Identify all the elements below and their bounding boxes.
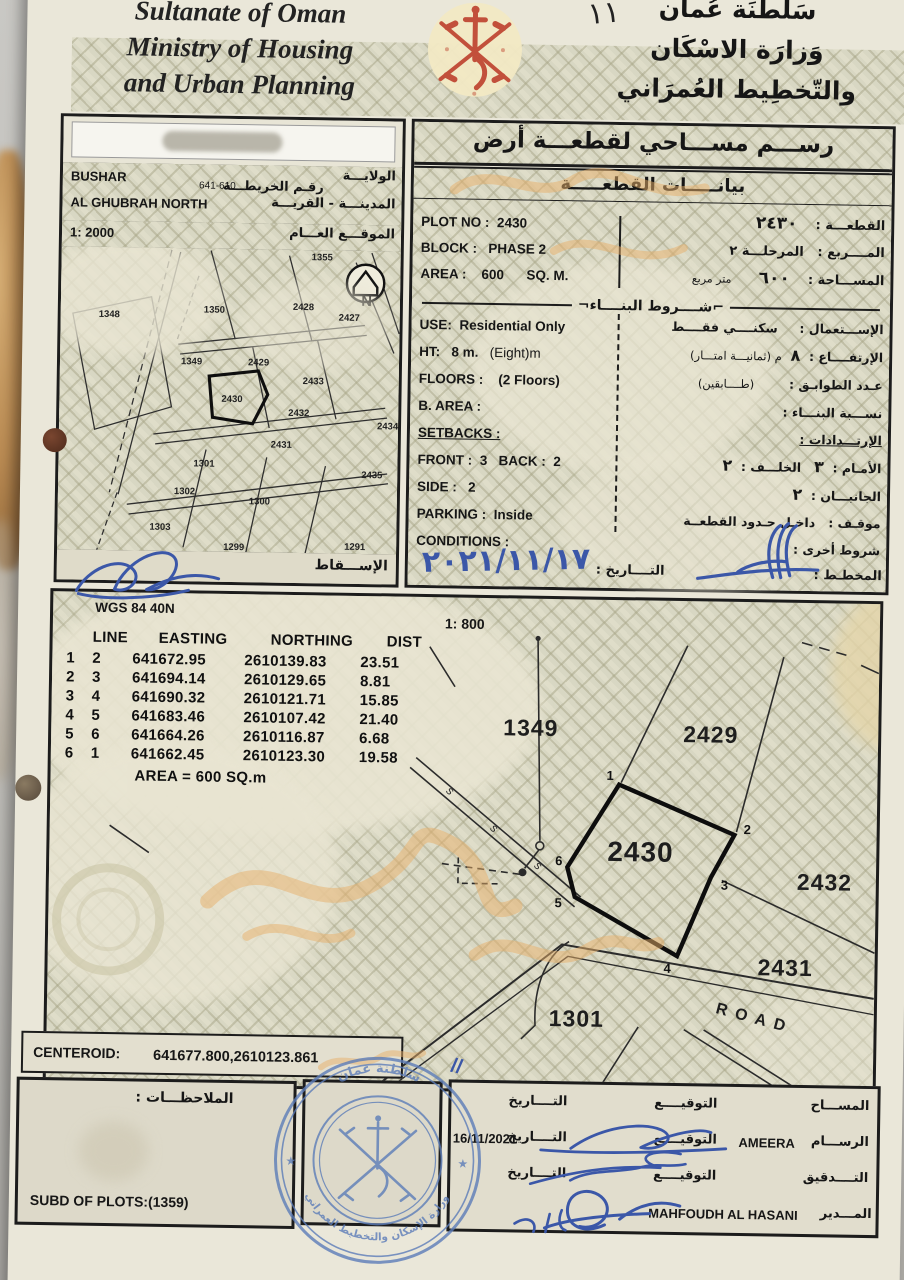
side-value-ar: ٢ bbox=[792, 485, 802, 504]
svg-text:★: ★ bbox=[457, 1157, 468, 1171]
header-ar-line2: وَزارَة الاسْكَان bbox=[597, 28, 878, 72]
front-label: FRONT : bbox=[417, 452, 472, 468]
plan-date-row: ٢٠٢١/١١/١٧ التــــاريخ : المخطـط : bbox=[408, 554, 886, 593]
map-plot-label-1291: 1291 bbox=[344, 542, 365, 553]
parking-label-ar: موقـف : bbox=[828, 515, 881, 531]
area-label-ar: المســـاحة : bbox=[808, 273, 885, 289]
ht-label-ar: الإرتفــــاع : bbox=[809, 349, 883, 365]
orange-watermark-script bbox=[208, 832, 517, 910]
header-ar-line1: سَلْطنَة عُمان bbox=[597, 0, 878, 32]
notes-box: الملاحظـــات : SUBD OF PLOTS:(1359) bbox=[14, 1077, 296, 1229]
drawing-scale-label: 1: 800 bbox=[445, 615, 485, 632]
map-plot-label-2433: 2433 bbox=[303, 376, 324, 387]
watermark-emblem-faint bbox=[78, 1121, 149, 1182]
subd-of-plots: SUBD OF PLOTS:(1359) bbox=[30, 1192, 189, 1210]
wilayat-label-ar: الولايـــة bbox=[343, 169, 396, 185]
area-value: 600 bbox=[481, 267, 504, 282]
col-dist: DIST bbox=[386, 632, 448, 652]
plot-2430-boundary bbox=[566, 784, 735, 957]
col-easting: EASTING bbox=[159, 629, 271, 650]
map-plot-label-1349: 1349 bbox=[181, 356, 202, 367]
approval-signatures bbox=[509, 1105, 841, 1240]
map-plot-label-1303: 1303 bbox=[149, 522, 170, 533]
left-panel: BUSHAR الولايـــة رقـم الخريطـــة 641-61… bbox=[54, 113, 406, 587]
map-plot-label-2434: 2434 bbox=[377, 421, 398, 432]
ht-note-ar: م (ثمانيـــة امتـــار) bbox=[690, 348, 782, 363]
map-plot-label-2430: 2430 bbox=[221, 394, 242, 405]
vertex-label-3: 3 bbox=[721, 878, 728, 893]
town-value: AL GHUBRAH NORTH bbox=[70, 194, 207, 211]
header-en-line2: Ministry of Housing bbox=[75, 27, 406, 68]
plot-data-zone: PLOT NO : 2430 BLOCK : PHASE 2 AREA : 60… bbox=[408, 199, 892, 592]
ht-label: HT: bbox=[419, 344, 440, 359]
location-row: BUSHAR الولايـــة رقـم الخريطـــة 641-61… bbox=[62, 162, 402, 228]
floors-label-ar: عـدد الطوابـق : bbox=[789, 377, 883, 393]
setbacks-label-ar: الإرتـــدادات : bbox=[799, 432, 882, 448]
scanned-document-canvas: Sultanate of Oman Ministry of Housing an… bbox=[0, 0, 904, 1280]
form-title-ar: رســـم مســـاحي لقطعـــة أرض bbox=[414, 122, 892, 160]
ht-note: (Eight)m bbox=[490, 345, 541, 361]
town-label-ar: المدينـــة - القريـــة bbox=[271, 196, 396, 213]
date-label-ar: التــــاريخ : bbox=[596, 563, 665, 579]
side-label: SIDE : bbox=[417, 479, 457, 495]
right-panel: رســـم مســـاحي لقطعـــة أرض بيانـــــات… bbox=[404, 119, 895, 596]
plot-info-english: PLOT NO : 2430 BLOCK : PHASE 2 AREA : 60… bbox=[420, 209, 569, 289]
whiteout-box bbox=[71, 121, 396, 162]
vertex-label-6: 6 bbox=[555, 853, 562, 868]
parking-value: Inside bbox=[494, 507, 533, 523]
side-value: 2 bbox=[468, 480, 476, 495]
map-plot-label-1300: 1300 bbox=[249, 496, 270, 507]
header-ar-line3: والتّخطِيط العُمرَاني bbox=[596, 68, 877, 112]
area-label: AREA : bbox=[420, 266, 466, 282]
site-plan-label-ar: الموقـــع العـــام bbox=[289, 226, 395, 243]
erased-blob bbox=[162, 131, 282, 153]
drawing-label-1349: 1349 bbox=[503, 714, 559, 742]
national-emblem-icon bbox=[424, 0, 526, 102]
planner-signature bbox=[678, 516, 829, 588]
map-no-value: 641-610 bbox=[199, 180, 236, 192]
col-line: LINE bbox=[93, 628, 159, 648]
notes-label-ar: الملاحظـــات : bbox=[135, 1090, 233, 1108]
wilayat-value: BUSHAR bbox=[71, 168, 127, 184]
handwritten-date-blue: ٢٠٢١/١١/١٧ bbox=[422, 542, 591, 580]
parking-label: PARKING : bbox=[417, 506, 487, 522]
block-label-ar: المــــربع : bbox=[817, 245, 885, 261]
block-value: PHASE 2 bbox=[488, 241, 546, 257]
drawing-label-2432: 2432 bbox=[797, 869, 853, 897]
block-label: BLOCK : bbox=[421, 240, 477, 256]
ht-value-ar: ٨ bbox=[790, 346, 800, 365]
plot-no-label-ar: القطعـــة : bbox=[815, 218, 885, 234]
form-subtitle-ar: بيانـــــات القطعـــــة bbox=[414, 168, 892, 200]
floors-value: (2 Floors) bbox=[498, 372, 560, 388]
plot-drawing-panel: s s s WGS 84 40N 1: 800 LINE EASTING NOR… bbox=[43, 588, 884, 1098]
map-no-label-ar: رقـم الخريطـــة bbox=[223, 179, 324, 196]
vertex-label-4: 4 bbox=[663, 961, 670, 976]
vertex-label-2: 2 bbox=[744, 822, 751, 837]
drawing-label-2429: 2429 bbox=[683, 721, 739, 749]
front-value-ar: ٣ bbox=[814, 457, 824, 476]
use-value: Residential Only bbox=[459, 318, 565, 335]
area-value-ar: ٦٠٠ bbox=[759, 268, 790, 288]
floors-value-ar: (طــــابقين) bbox=[698, 376, 755, 391]
col-northing: NORTHING bbox=[271, 631, 387, 652]
front-label-ar: الأمـام : bbox=[832, 460, 881, 476]
use-label-ar: الإســـتعمال : bbox=[799, 321, 883, 337]
side-label-ar: الجانبـــان : bbox=[811, 488, 881, 504]
north-arrow-icon: N bbox=[347, 264, 385, 310]
centeroid-label: CENTEROID: bbox=[33, 1044, 120, 1061]
block-value-ar: المرحلـــة ٢ bbox=[729, 244, 804, 260]
map-plot-label-2432: 2432 bbox=[288, 408, 309, 419]
plot-no-value: 2430 bbox=[497, 215, 527, 230]
vertex-label-1: 1 bbox=[606, 768, 613, 783]
floors-label: FLOORS : bbox=[419, 371, 484, 387]
barea-label-ar: نســـبة البنـــاء : bbox=[782, 405, 882, 422]
coordinates-table: LINE EASTING NORTHING DIST 12641672.9526… bbox=[64, 627, 448, 790]
svg-text:N: N bbox=[361, 294, 372, 310]
map-plot-label-1348: 1348 bbox=[99, 309, 120, 320]
projection-label-ar: الإســـقاط bbox=[314, 557, 387, 574]
ministry-stamp: سلطنة عمان وزارة الإسكان والتخطيط العمرا… bbox=[266, 1049, 490, 1278]
header-arabic: سَلْطنَة عُمان وَزارَة الاسْكَان والتّخط… bbox=[596, 0, 878, 112]
map-number-label: الولايـــة bbox=[343, 169, 396, 185]
front-value: 3 bbox=[480, 453, 488, 468]
plot-info-arabic: القطعـــة : ٢٤٣٠ المــــربع : المرحلـــة… bbox=[692, 209, 886, 295]
document-paper: Sultanate of Oman Ministry of Housing an… bbox=[7, 0, 904, 1280]
map-plot-label-2431: 2431 bbox=[271, 440, 292, 451]
vertex-label-5: 5 bbox=[554, 895, 561, 910]
signatures-box: المســـاح التوقيــــع التــــاريخ الرســ… bbox=[446, 1079, 880, 1238]
form-title-row: رســـم مســـاحي لقطعـــة أرض bbox=[414, 122, 893, 173]
map-plot-label-2427: 2427 bbox=[339, 313, 360, 324]
map-plot-label-2429: 2429 bbox=[248, 357, 269, 368]
plot-no-value-ar: ٢٤٣٠ bbox=[756, 213, 798, 234]
map-plot-label-1355: 1355 bbox=[312, 252, 333, 263]
drawing-label-2430: 2430 bbox=[607, 836, 674, 869]
ht-value: 8 m. bbox=[451, 344, 478, 359]
map-plot-label-1301: 1301 bbox=[193, 458, 214, 469]
plot-no-label: PLOT NO : bbox=[421, 214, 489, 230]
divider-solid bbox=[618, 216, 621, 288]
back-value-ar: ٢ bbox=[722, 456, 732, 475]
barea-label: B. AREA : bbox=[418, 398, 481, 414]
coords-rows: 12641672.952610139.8323.5123641694.14261… bbox=[65, 648, 449, 768]
header-english: Sultanate of Oman Ministry of Housing an… bbox=[74, 0, 406, 105]
svg-text:★: ★ bbox=[285, 1154, 296, 1168]
area-unit-ar: متر مربع bbox=[692, 272, 732, 286]
back-label: BACK : bbox=[498, 453, 545, 469]
use-label: USE: bbox=[420, 317, 452, 333]
setbacks-label: SETBACKS : bbox=[418, 425, 501, 441]
projection-signature bbox=[68, 538, 229, 616]
map-plot-label-1302: 1302 bbox=[174, 486, 195, 497]
watermark-circle bbox=[56, 867, 161, 972]
use-value-ar: سكنــــي فقــــط bbox=[671, 319, 778, 336]
area-unit: SQ. M. bbox=[526, 268, 568, 284]
punch-hole-2 bbox=[15, 775, 41, 801]
header-en-line3: and Urban Planning bbox=[74, 63, 405, 104]
map-scale-value: 1: 2000 bbox=[70, 224, 114, 240]
conditions-english: USE: Residential Only HT: 8 m. (Eight)m … bbox=[416, 311, 565, 556]
site-map-1-2000: N 13481350135524282427134924292433243024… bbox=[57, 246, 401, 557]
area-note: AREA = 600 SQ.m bbox=[134, 766, 266, 787]
map-plot-label-1350: 1350 bbox=[204, 304, 225, 315]
back-value: 2 bbox=[553, 454, 561, 469]
map-plot-label-2428: 2428 bbox=[293, 302, 314, 313]
map-plot-label-2435: 2435 bbox=[361, 470, 382, 481]
drawing-label-2431: 2431 bbox=[757, 954, 813, 982]
drawing-label-1301: 1301 bbox=[549, 1005, 605, 1033]
back-label-ar: الخلـــف : bbox=[741, 459, 801, 475]
divider-dashed bbox=[614, 314, 619, 532]
